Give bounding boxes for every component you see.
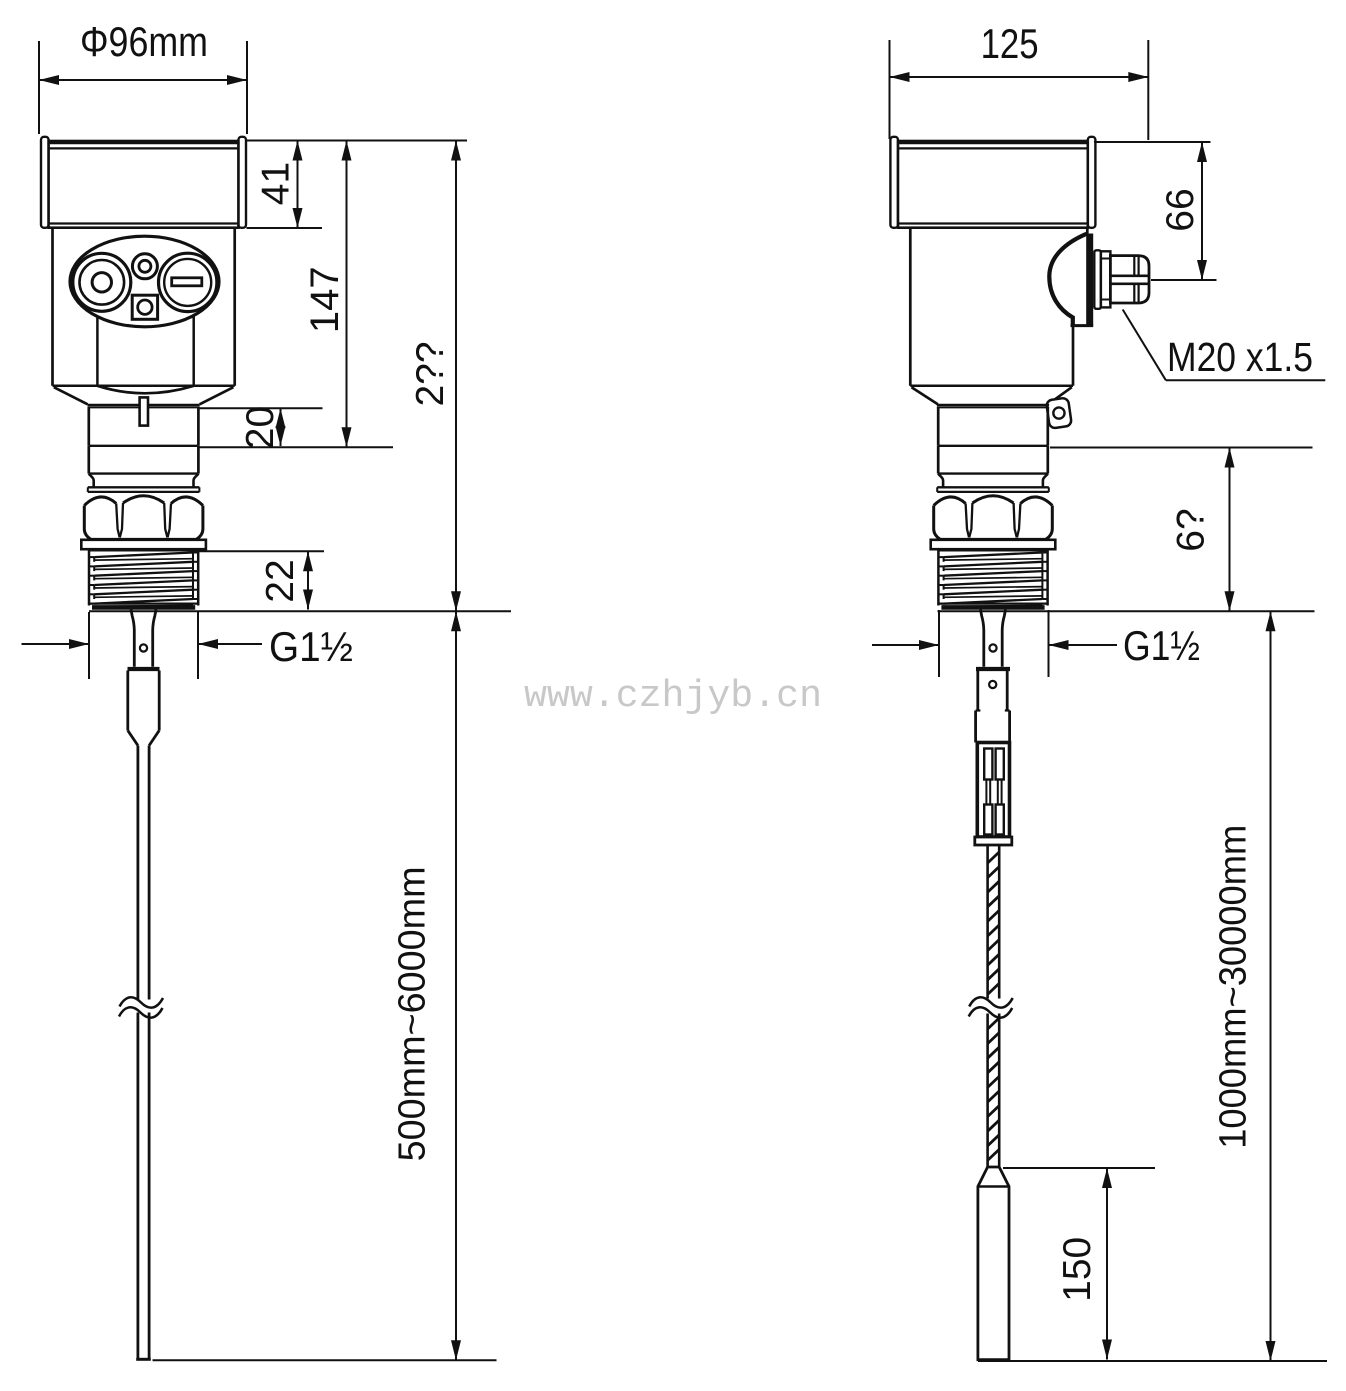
svg-text:66: 66 — [1159, 188, 1202, 231]
svg-text:125: 125 — [981, 20, 1039, 67]
svg-text:41: 41 — [254, 162, 297, 205]
svg-text:2??: 2?? — [409, 341, 452, 406]
svg-text:500mm~6000mm: 500mm~6000mm — [391, 866, 433, 1161]
svg-text:22: 22 — [259, 559, 302, 602]
svg-text:M20 x1.5: M20 x1.5 — [1167, 334, 1313, 380]
svg-text:Φ96mm: Φ96mm — [80, 18, 208, 65]
svg-text:G1½: G1½ — [269, 623, 353, 670]
svg-text:G1½: G1½ — [1123, 622, 1200, 669]
svg-text:147: 147 — [303, 266, 347, 333]
svg-text:www.czhjyb.cn: www.czhjyb.cn — [524, 675, 822, 718]
svg-text:20: 20 — [239, 406, 282, 449]
svg-text:1000mm~30000mm: 1000mm~30000mm — [1213, 825, 1255, 1149]
svg-text:6?: 6? — [1169, 508, 1212, 551]
svg-text:150: 150 — [1056, 1237, 1099, 1302]
